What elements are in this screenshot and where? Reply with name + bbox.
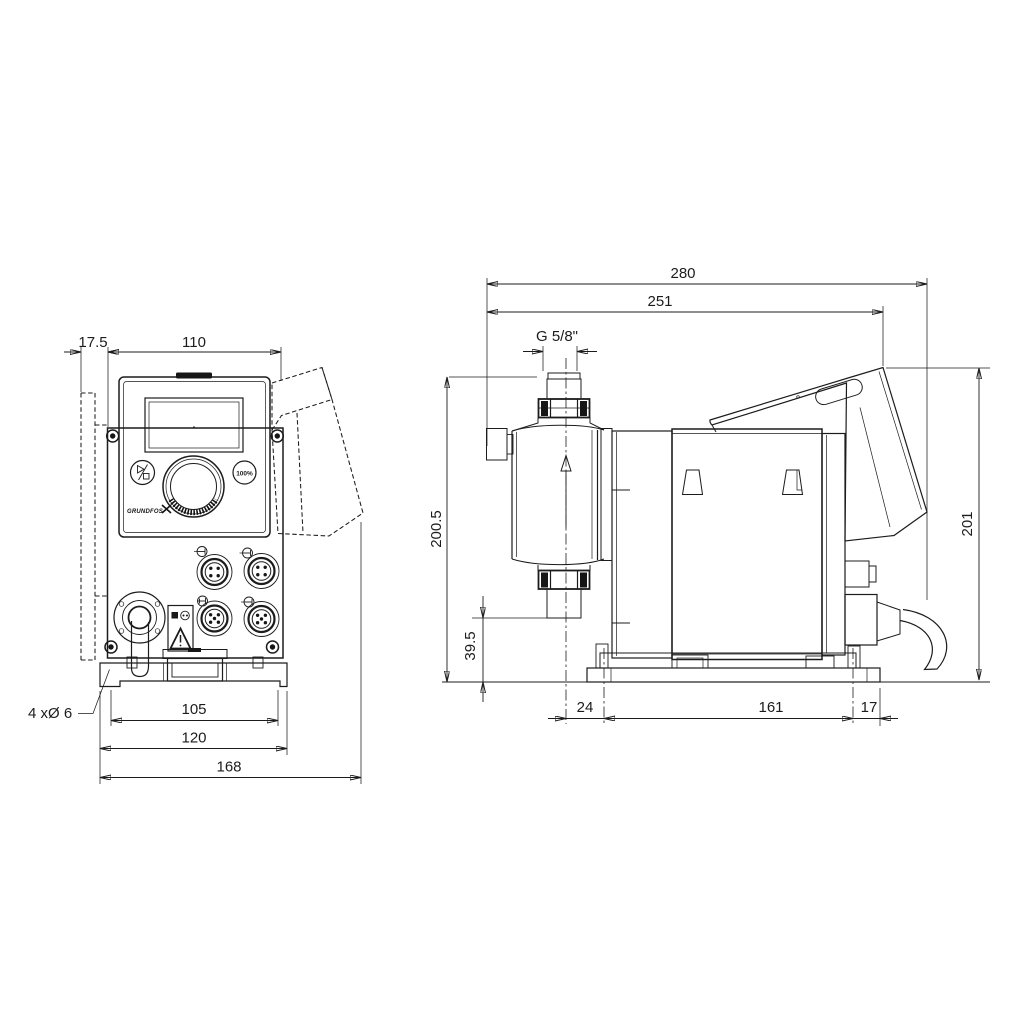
click-wheel[interactable] [163,456,224,517]
dim-label: 110 [182,334,206,351]
start-stop-icon [138,465,150,481]
dim-thread: G 5/8" [523,328,597,371]
back-panel [822,434,845,656]
hood-clip [176,373,212,379]
warning-label-plate [168,606,193,652]
plug-icon [181,611,190,620]
wall-bracket-phantom [81,393,107,660]
dim-label: 161 [758,699,783,716]
dim-label: 201 [959,511,976,536]
start-stop-button[interactable] [131,461,155,485]
dim-overall-depth: 280 [487,265,927,600]
dim-height-overall: 200.5 [428,377,537,682]
display [145,398,243,452]
dim-label: 17.5 [78,334,107,351]
vent-valve [487,429,514,461]
dim-overall-width: 168 [100,522,361,784]
dim-label: G 5/8" [536,328,578,345]
side-base [442,644,990,682]
front-view: 100% GRUNDFOS [28,334,363,784]
dim-connector-height: 39.5 [462,596,556,702]
drawing-canvas: 100% GRUNDFOS [0,0,1024,1024]
dim-wall-offset: 17.5 [64,334,124,427]
dim-label: 168 [216,759,241,776]
dim-hood-height: 201 [886,368,990,680]
dim-label: 39.5 [462,631,479,660]
connector-socket[interactable] [197,555,232,590]
dim-label: 200.5 [428,510,445,548]
front-dimensions: 17.5 110 105 120 [28,334,361,784]
dim-label: 280 [670,265,695,282]
hood-open [710,368,927,542]
dim-label: 24 [577,699,594,716]
mounting-holes-callout: 4 xØ 6 [28,670,110,723]
hood-handle-recess [814,377,865,406]
power-cable [900,610,947,670]
technical-drawing: 100% GRUNDFOS [0,0,1024,1024]
dim-label: 17 [861,699,878,716]
side-base-plate [587,668,880,682]
logo-swoosh-icon [162,505,171,513]
connector-panel [114,547,279,682]
bottom-thread [547,589,581,618]
warning-triangle-icon [171,629,191,649]
control-panel: 100% GRUNDFOS [119,373,270,538]
mounting-clip [127,648,263,681]
dosing-head [487,373,613,618]
dim-label: 120 [181,730,206,747]
rear-connector-stub [845,561,869,587]
wheel-knurl [171,500,216,513]
top-thread [547,379,581,399]
hundred-percent-button[interactable]: 100% [233,461,256,484]
pump-body [612,429,947,670]
hundred-percent-label: 100% [236,471,253,478]
dim-label: 105 [181,701,206,718]
cable-gland [114,592,165,677]
base-plate [100,663,287,687]
dim-label: 251 [647,293,672,310]
top-union-nut [539,399,590,418]
head-flange [601,429,612,561]
hood-latch-recess [683,470,703,495]
connector-socket[interactable] [244,554,279,589]
bottom-union-nut [539,571,590,590]
hood-open-phantom [272,368,363,537]
dim-hole-spacing: 105 [111,690,278,726]
holes-label: 4 xØ 6 [28,705,72,722]
side-view: 280 251 G 5/8" 200.5 [428,265,990,726]
brand-logo: GRUNDFOS [127,509,163,515]
device-icon [172,612,179,619]
hood-latch-recess [783,470,803,495]
